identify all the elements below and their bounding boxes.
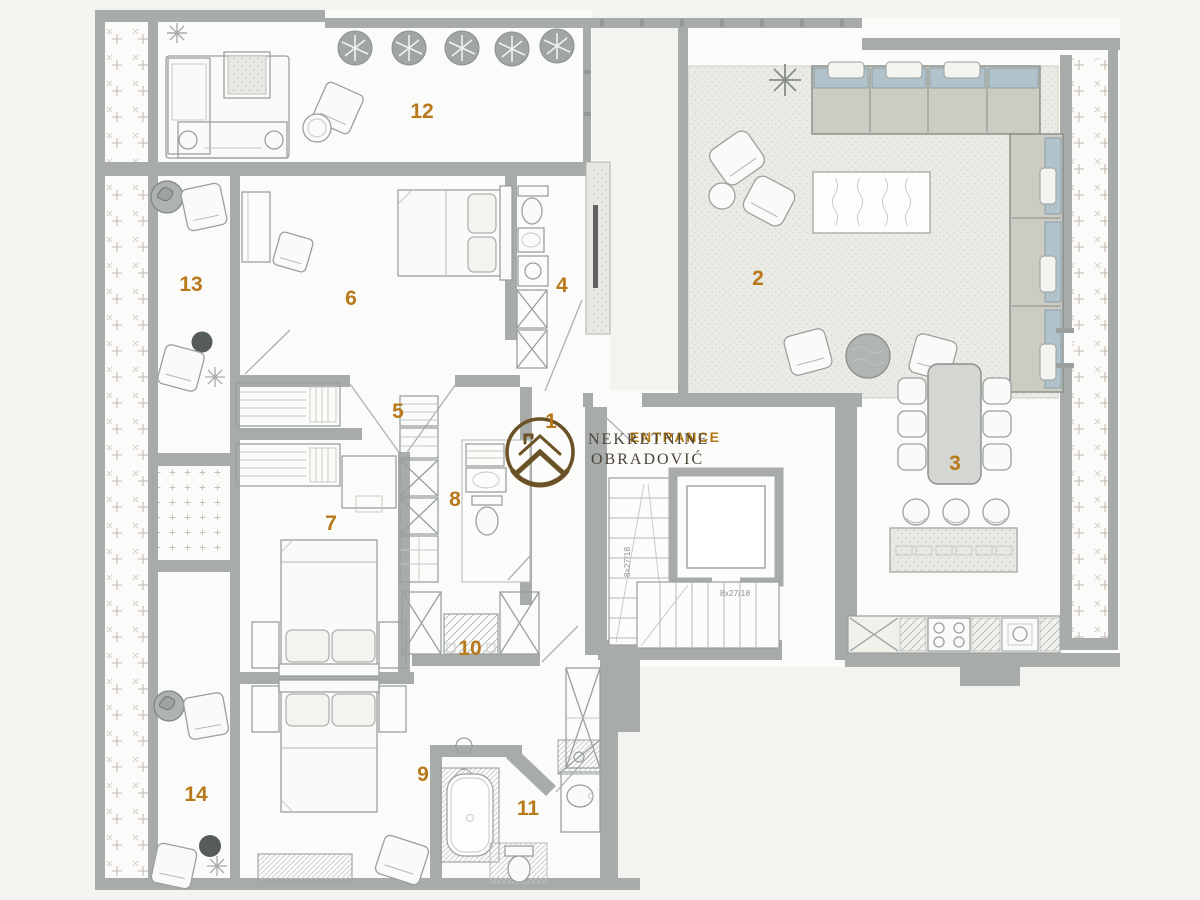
watermark-line1: NEKRETNINE xyxy=(588,431,709,448)
shower-icon xyxy=(558,740,600,774)
round-table-icon xyxy=(303,114,331,142)
room-label-9: 9 xyxy=(417,763,429,786)
chair-icon xyxy=(180,182,228,231)
dresser-icon xyxy=(258,854,352,880)
room-label-1: 1 xyxy=(545,410,557,433)
stairs-down-icon xyxy=(637,582,779,648)
watermark-line2: OBRADOVIĆ xyxy=(591,449,704,468)
room-label-10: 10 xyxy=(458,637,481,660)
compass-star-icon xyxy=(207,856,227,876)
stove-icon xyxy=(928,618,970,651)
chair-icon xyxy=(183,692,230,740)
bed-icon xyxy=(398,186,512,280)
bed-icon xyxy=(279,540,379,676)
window-icon xyxy=(593,205,598,288)
room-label-2: 2 xyxy=(752,267,764,290)
side-table-icon xyxy=(709,183,735,209)
floor-plan-drawing: 8x27/18 8x27/18 xyxy=(0,0,1200,900)
coffee-table-icon xyxy=(813,172,930,233)
compass-star-icon xyxy=(205,367,225,387)
elevator-icon xyxy=(673,472,779,584)
stair-dimension-a: 8x27/18 xyxy=(622,547,632,578)
wall-band-window xyxy=(586,162,610,334)
planting-hatch xyxy=(158,466,232,562)
room-label-14: 14 xyxy=(184,783,208,806)
room-label-6: 6 xyxy=(345,287,357,310)
side-table-icon xyxy=(224,52,270,98)
room-label-13: 13 xyxy=(179,273,202,296)
kitchen-island-icon xyxy=(890,528,1017,572)
chair-icon xyxy=(150,842,197,889)
stair-dimension-b: 8x27/18 xyxy=(720,588,751,598)
oven-icon xyxy=(1002,618,1038,651)
floor-plan-page: 8x27/18 8x27/18 xyxy=(0,0,1200,900)
room-label-3: 3 xyxy=(949,452,961,475)
room-label-7: 7 xyxy=(325,512,337,535)
bed-icon xyxy=(279,680,379,812)
right-balcony-hatch xyxy=(1072,58,1108,640)
room-label-11: 11 xyxy=(517,797,540,820)
bar-stools xyxy=(903,499,1009,525)
room-label-12: 12 xyxy=(410,100,433,123)
plant-icon xyxy=(154,691,184,721)
round-table-icon xyxy=(199,835,221,857)
wc-niche xyxy=(462,440,530,582)
toilet-icon xyxy=(490,843,547,883)
left-balcony-hatch xyxy=(103,20,148,878)
plant-icon xyxy=(151,181,183,213)
room-label-8: 8 xyxy=(449,488,461,511)
pouf-icon xyxy=(846,334,890,378)
room-label-5: 5 xyxy=(392,400,404,423)
round-table-icon xyxy=(192,332,213,353)
kitchen-counter-icon xyxy=(848,616,1060,653)
compass-star-icon xyxy=(167,23,187,43)
room-label-4: 4 xyxy=(556,274,568,297)
